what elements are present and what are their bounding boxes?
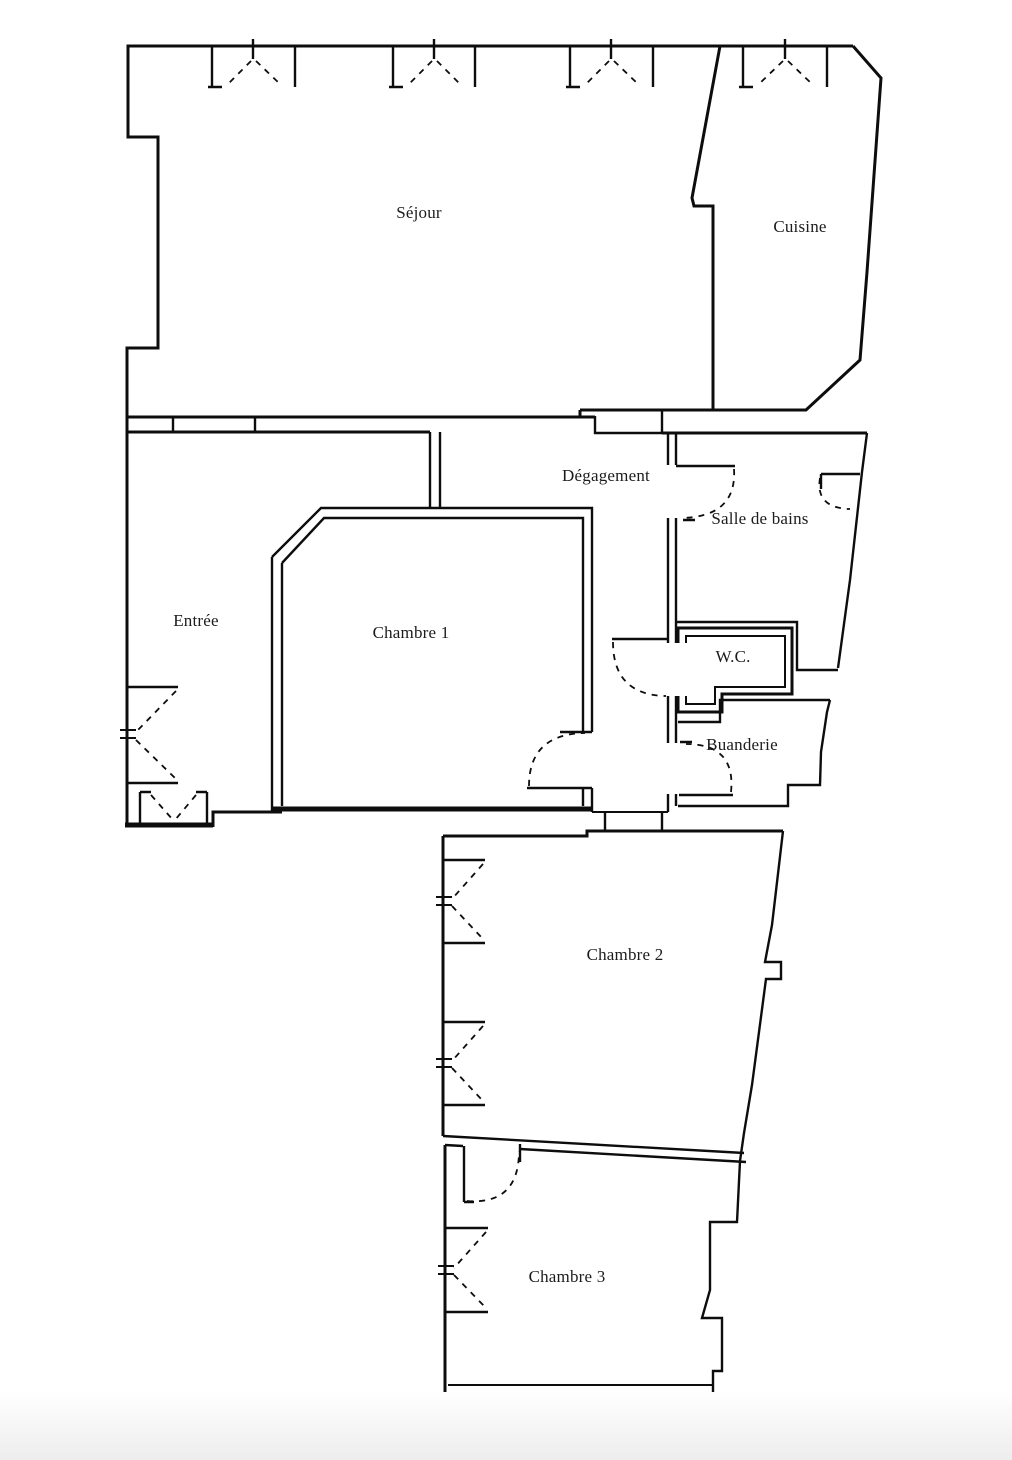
chambre2-walls — [443, 831, 783, 1161]
door-swing-icon — [140, 792, 207, 825]
floor-plan-page: Séjour Cuisine Dégagement Salle de bains… — [0, 0, 1012, 1460]
room-label-salle-de-bains: Salle de bains — [711, 509, 808, 529]
room-label-sejour: Séjour — [396, 203, 442, 223]
page-bottom-strip — [0, 1392, 1012, 1460]
room-label-chambre-2: Chambre 2 — [587, 945, 664, 965]
room-label-entree: Entrée — [173, 611, 219, 631]
chambre1-walls — [272, 432, 592, 812]
floor-plan-drawing — [0, 0, 1012, 1460]
salle-de-bains-walls — [662, 433, 867, 670]
room-label-degagement: Dégagement — [562, 466, 650, 486]
window-icon — [120, 687, 178, 783]
room-label-chambre-1: Chambre 1 — [373, 623, 450, 643]
door-swing-icon — [612, 639, 668, 696]
room-label-chambre-3: Chambre 3 — [529, 1267, 606, 1287]
degagement-walls — [592, 433, 676, 832]
chambre2-3-divider-wall — [443, 1136, 746, 1162]
door-swing-icon — [464, 1146, 519, 1202]
sejour-walls — [125, 46, 853, 827]
room-label-buanderie: Buanderie — [706, 735, 778, 755]
door-swing-icon — [527, 733, 592, 788]
room-label-wc: W.C. — [715, 647, 750, 667]
door-swing-icon — [819, 474, 860, 509]
room-label-cuisine: Cuisine — [773, 217, 826, 237]
